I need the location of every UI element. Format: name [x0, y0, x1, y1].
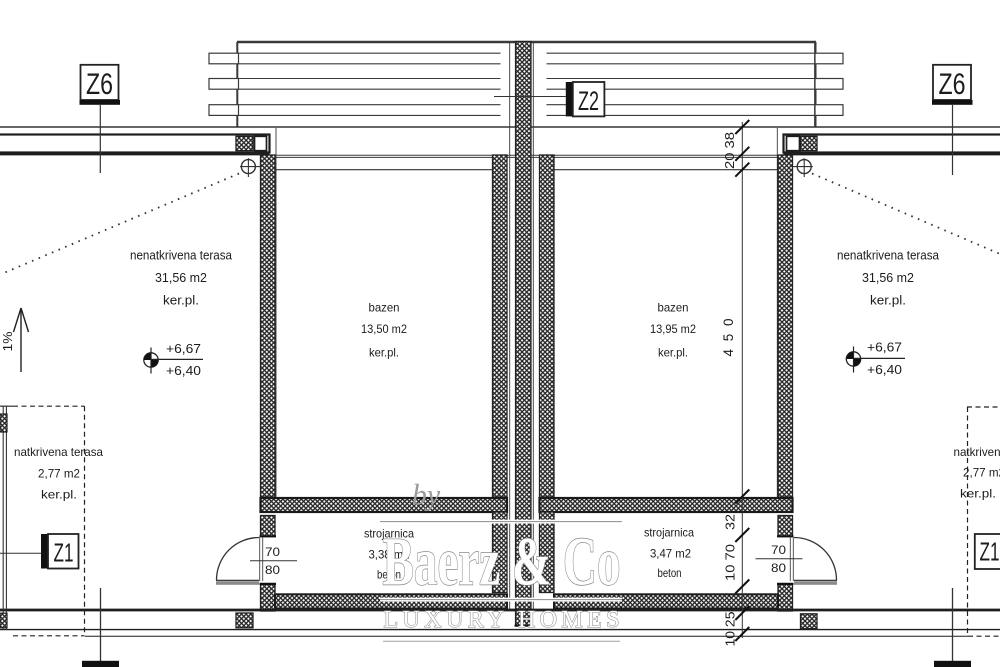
svg-text:2,77 m2: 2,77 m2 — [38, 467, 80, 481]
svg-text:+6,67: +6,67 — [867, 341, 902, 355]
svg-text:10 70: 10 70 — [723, 544, 738, 581]
svg-text:ker.pl.: ker.pl. — [870, 294, 906, 308]
svg-text:beton: beton — [658, 566, 682, 580]
svg-text:Z1: Z1 — [980, 537, 1000, 567]
svg-text:Baerz & Co: Baerz & Co — [383, 524, 621, 600]
svg-text:Z6: Z6 — [939, 68, 966, 101]
svg-text:32: 32 — [723, 514, 738, 530]
svg-text:3,47 m2: 3,47 m2 — [650, 547, 691, 561]
svg-text:+6,40: +6,40 — [867, 363, 902, 377]
svg-text:20 38: 20 38 — [722, 132, 737, 169]
svg-text:bazen: bazen — [369, 301, 400, 315]
svg-text:13,95 m2: 13,95 m2 — [650, 322, 696, 336]
svg-text:nenatkrivena terasa: nenatkrivena terasa — [837, 249, 939, 263]
svg-text:strojarnica: strojarnica — [644, 526, 694, 540]
svg-text:Z2: Z2 — [578, 86, 599, 116]
svg-text:Z1: Z1 — [54, 538, 74, 568]
svg-text:450: 450 — [721, 319, 736, 357]
svg-text:nenatkrivena terasa: nenatkrivena terasa — [130, 249, 232, 263]
svg-text:31,56 m2: 31,56 m2 — [862, 271, 914, 285]
svg-text:31,56 m2: 31,56 m2 — [155, 271, 207, 285]
svg-text:80: 80 — [265, 565, 280, 577]
svg-text:natkrivena terasa: natkrivena terasa — [954, 445, 1000, 459]
svg-text:+6,40: +6,40 — [166, 364, 201, 378]
svg-text:+6,67: +6,67 — [166, 342, 201, 356]
svg-text:ker.pl.: ker.pl. — [658, 346, 688, 360]
svg-text:2,77 m2: 2,77 m2 — [963, 466, 1000, 480]
svg-text:80: 80 — [771, 563, 786, 575]
svg-text:ker.pl.: ker.pl. — [960, 487, 996, 501]
svg-text:Z6: Z6 — [86, 68, 113, 101]
svg-text:70: 70 — [771, 545, 786, 557]
svg-text:ker.pl.: ker.pl. — [41, 488, 77, 502]
svg-text:natkrivena terasa: natkrivena terasa — [14, 445, 103, 459]
svg-text:bazen: bazen — [658, 301, 689, 315]
svg-text:by: by — [412, 479, 441, 512]
svg-text:13,50 m2: 13,50 m2 — [361, 322, 407, 336]
svg-text:10 25: 10 25 — [723, 612, 738, 647]
svg-text:ker.pl.: ker.pl. — [369, 346, 399, 360]
svg-text:70: 70 — [265, 547, 280, 559]
svg-text:1%: 1% — [0, 331, 15, 351]
svg-text:ker.pl.: ker.pl. — [163, 294, 199, 308]
